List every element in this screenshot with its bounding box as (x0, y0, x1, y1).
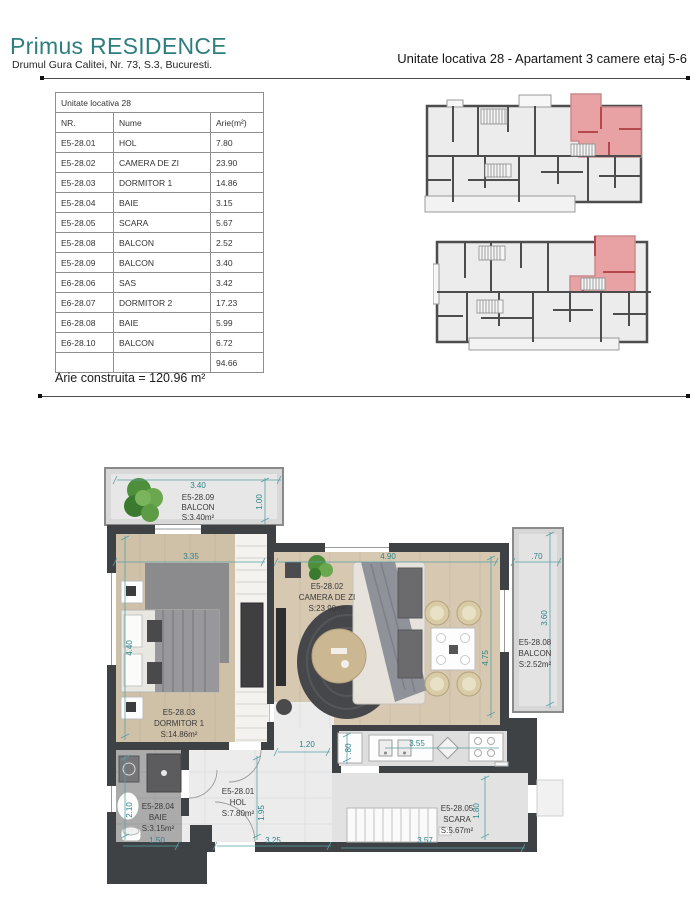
svg-text:DORMITOR 1: DORMITOR 1 (154, 719, 205, 728)
svg-text:HOL: HOL (230, 798, 247, 807)
header-rule (40, 78, 690, 79)
table-title-row: Unitate locativa 28 (56, 93, 264, 113)
stairs-hatch (481, 109, 507, 124)
room-label-scara: E5-28.05 SCARA S:5.67m² (441, 804, 474, 835)
svg-text:SCARA: SCARA (443, 815, 471, 824)
svg-text:2.10: 2.10 (125, 802, 134, 818)
svg-text:S:2.52m²: S:2.52m² (519, 660, 552, 669)
svg-text:1.95: 1.95 (257, 805, 266, 821)
svg-text:4.75: 4.75 (481, 650, 490, 666)
total-area: 94.66 (211, 353, 264, 373)
svg-text:3.57: 3.57 (417, 836, 433, 845)
svg-text:E5-28.01: E5-28.01 (222, 787, 255, 796)
table-row: E6-28.08BAIE5.99 (56, 313, 264, 333)
keyplan-thumbnail-lower (433, 234, 658, 352)
svg-text:BAIE: BAIE (149, 813, 167, 822)
svg-text:E5-28.04: E5-28.04 (142, 802, 175, 811)
svg-text:3.60: 3.60 (540, 610, 549, 626)
table-header-row: NR. Nume Arie(m²) (56, 113, 264, 133)
table-row: E6-28.07DORMITOR 217.23 (56, 293, 264, 313)
table-row: E5-28.01HOL7.80 (56, 133, 264, 153)
table-row: E5-28.02CAMERA DE ZI23.90 (56, 153, 264, 173)
table-row: E6-28.10BALCON6.72 (56, 333, 264, 353)
table-row: E5-28.04BAIE3.15 (56, 193, 264, 213)
svg-text:E5-28.05: E5-28.05 (441, 804, 474, 813)
floorplan-sheet: { "header": { "brand": "Primus RESIDENCE… (0, 0, 695, 900)
svg-text:BALCON: BALCON (182, 503, 215, 512)
svg-text:S:3.15m²: S:3.15m² (142, 824, 175, 833)
tv-unit (276, 608, 286, 686)
svg-text:4.90: 4.90 (380, 552, 396, 561)
svg-text:E5-28.08: E5-28.08 (519, 638, 552, 647)
page-title: Primus RESIDENCE (10, 33, 227, 60)
svg-text:E5-28.03: E5-28.03 (163, 708, 196, 717)
svg-text:3.55: 3.55 (409, 739, 425, 748)
stairs-hatch (571, 144, 595, 156)
svg-text:S:14.86m²: S:14.86m² (161, 730, 198, 739)
plant-pot (276, 699, 292, 715)
svg-text:BALCON: BALCON (519, 649, 552, 658)
svg-text:E5-28.09: E5-28.09 (182, 493, 215, 502)
svg-text:.70: .70 (531, 552, 543, 561)
svg-text:S:5.67m²: S:5.67m² (441, 826, 474, 835)
svg-text:S:23.90m²: S:23.90m² (309, 604, 346, 613)
room-label-balcony-right: E5-28.08 BALCON S:2.52m² (519, 638, 552, 669)
svg-text:3.40: 3.40 (190, 481, 206, 490)
svg-text:E5-28.02: E5-28.02 (311, 582, 344, 591)
table-title: Unitate locativa 28 (56, 93, 264, 113)
table-row: E5-28.05SCARA5.67 (56, 213, 264, 233)
svg-text:.80: .80 (344, 743, 353, 755)
svg-text:1.00: 1.00 (255, 494, 264, 510)
svg-text:1.50: 1.50 (149, 836, 165, 845)
room-label-balcony-top: E5-28.09 BALCON S:3.40m² (182, 493, 215, 522)
stairs-hatch (485, 164, 511, 177)
stairs-hatch (479, 246, 505, 260)
section-rule (38, 396, 690, 397)
coffee-table (312, 629, 366, 683)
unit-title: Unitate locativa 28 - Apartament 3 camer… (397, 51, 687, 66)
apartment-floorplan: 3.40 1.00 3.35 4.40 4.90 4.75 .70 3.60 1… (95, 440, 655, 900)
svg-text:CAMERA DE ZI: CAMERA DE ZI (299, 593, 355, 602)
table-row: E5-28.09BALCON3.40 (56, 253, 264, 273)
svg-text:S:7.80m²: S:7.80m² (222, 809, 255, 818)
svg-text:3.35: 3.35 (183, 552, 199, 561)
svg-text:4.40: 4.40 (125, 640, 134, 656)
table-row: E5-28.08BALCON2.52 (56, 233, 264, 253)
table-row: E5-28.03DORMITOR 114.86 (56, 173, 264, 193)
svg-text:1.80: 1.80 (472, 803, 481, 819)
svg-text:3.25: 3.25 (265, 836, 281, 845)
built-area-note: Arie construita = 120.96 m² (55, 371, 205, 385)
svg-text:1.20: 1.20 (299, 740, 315, 749)
area-table: Unitate locativa 28 NR. Nume Arie(m²) E5… (55, 92, 264, 373)
stairs (347, 808, 451, 842)
address-subtitle: Drumul Gura Calitei, Nr. 73, S.3, Bucure… (12, 59, 212, 71)
stairs-hatch (477, 300, 503, 313)
table-total-row: 94.66 (56, 353, 264, 373)
svg-text:S:3.40m²: S:3.40m² (182, 513, 215, 522)
table-row: E6-28.06SAS3.42 (56, 273, 264, 293)
stairs-hatch (581, 278, 605, 290)
keyplan-thumbnail-upper (423, 92, 648, 222)
